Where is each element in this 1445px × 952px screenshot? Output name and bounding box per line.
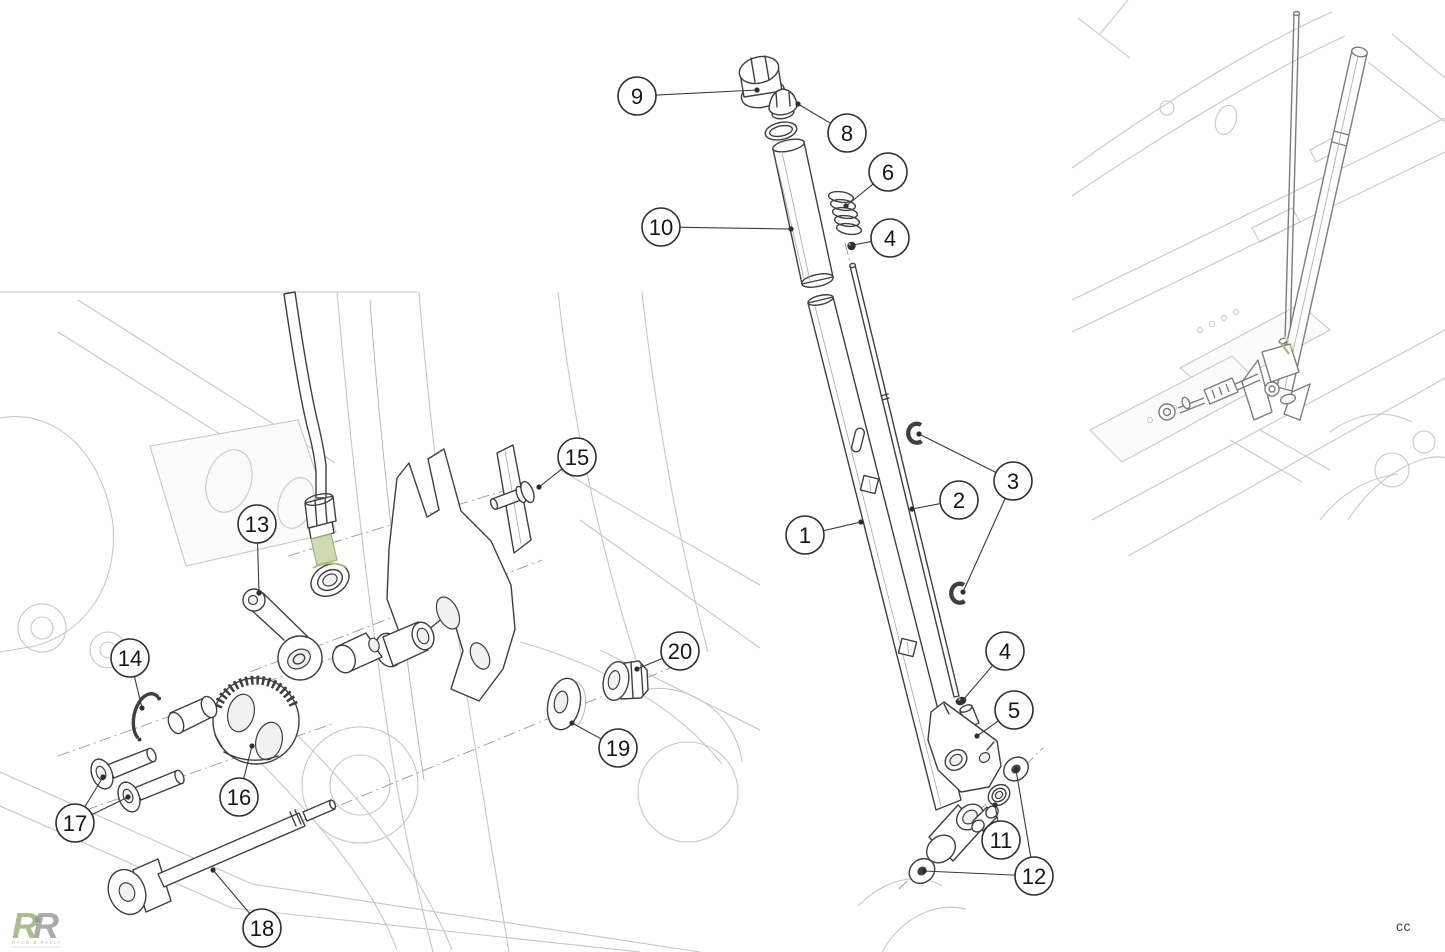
flanged-nut-part-20 <box>600 659 648 702</box>
leader-line <box>572 723 601 739</box>
leader-dot <box>125 794 130 799</box>
callout-number: 1 <box>799 523 811 548</box>
callout-number: 12 <box>1022 864 1046 889</box>
leader-dot <box>1013 767 1018 772</box>
callout-number: 16 <box>227 785 251 810</box>
callout-number: 9 <box>631 84 643 109</box>
chassis-background <box>1072 0 1445 556</box>
callout-number: 2 <box>953 488 965 513</box>
callout-number: 13 <box>245 512 269 537</box>
leader-dot <box>921 868 926 873</box>
callout-number: 18 <box>250 916 274 941</box>
leader-dot <box>850 242 855 247</box>
outer-tube-part-10 <box>772 137 835 290</box>
leader-dot <box>916 431 921 436</box>
washer-part-19 <box>543 675 586 733</box>
leader-line <box>213 870 250 913</box>
circlip-part-14 <box>133 694 161 742</box>
callout-15: 15 <box>536 438 596 490</box>
callout-number: 11 <box>990 828 1013 853</box>
callout-1: 1 <box>786 516 864 554</box>
brand-logo: R R & RACE & RALLY <box>12 905 62 947</box>
credit-text: cc <box>1396 918 1411 934</box>
pedal-assembly-exploded-view <box>0 292 760 952</box>
clevis-pin-short <box>165 694 219 736</box>
leader-line <box>963 665 993 700</box>
callout-8: 8 <box>795 101 866 152</box>
leader-dot <box>634 666 639 671</box>
callout-number: 5 <box>1008 698 1020 723</box>
leader-dot <box>569 720 574 725</box>
callout-20: 20 <box>634 632 699 672</box>
logo-ampersand: & <box>34 914 41 924</box>
leader-dot <box>909 506 914 511</box>
callout-10: 10 <box>642 208 794 246</box>
parts-diagram-page: 9861041532113142045191617111218 R R & RA… <box>0 0 1445 952</box>
callout-17: 17 <box>56 774 131 842</box>
leader-dot <box>754 87 759 92</box>
leader-line <box>924 871 1015 875</box>
leader-dot <box>139 705 144 710</box>
leader-dot <box>536 484 541 489</box>
pivot-tube <box>921 799 988 869</box>
callout-number: 3 <box>1007 469 1019 494</box>
leader-dot <box>974 733 979 738</box>
callout-number: 4 <box>884 226 896 251</box>
leader-dot <box>256 590 261 595</box>
diagram-canvas: 9861041532113142045191617111218 R R & RA… <box>0 0 1445 952</box>
leader-line <box>680 227 791 229</box>
assembled-overview-view <box>1072 0 1445 556</box>
leader-line <box>853 242 871 245</box>
leader-line <box>539 469 562 487</box>
fork-bracket-part <box>387 445 531 701</box>
pivot-boss-bushings <box>329 619 437 675</box>
callout-3: 3 <box>916 431 1032 594</box>
leader-line <box>912 504 940 509</box>
logo-subtext: RACE & RALLY <box>12 940 62 945</box>
pedal-axis-lines <box>58 486 692 889</box>
callout-2: 2 <box>909 481 978 519</box>
leader-dot <box>100 774 105 779</box>
callout-19: 19 <box>569 720 637 767</box>
leader-dot <box>960 589 965 594</box>
callout-4: 4 <box>850 219 909 257</box>
callout-number: 20 <box>668 639 692 664</box>
callout-number: 8 <box>841 121 853 146</box>
callout-9: 9 <box>618 77 760 115</box>
assembled-handbrake <box>1159 12 1368 421</box>
leader-dot <box>788 226 793 231</box>
leader-line <box>258 543 259 593</box>
callout-number: 10 <box>649 215 673 240</box>
callout-number: 6 <box>882 160 894 185</box>
lever-arm-part-13 <box>243 589 322 680</box>
callout-number: 14 <box>118 646 142 671</box>
callout-14: 14 <box>111 639 149 711</box>
callout-18: 18 <box>210 867 281 947</box>
leader-dot <box>249 743 254 748</box>
leader-dot <box>210 867 215 872</box>
callout-5: 5 <box>974 691 1033 739</box>
leader-dot <box>960 697 965 702</box>
leader-dot <box>843 203 848 208</box>
leader-line <box>798 104 831 123</box>
leader-dot <box>992 802 997 807</box>
floor-arcs-background <box>858 879 966 952</box>
callout-6: 6 <box>843 153 907 209</box>
callout-number: 17 <box>63 811 87 836</box>
leader-dot <box>858 519 863 524</box>
callout-number: 15 <box>565 445 589 470</box>
leader-dot <box>795 101 800 106</box>
knurled-gear-part-16 <box>213 678 299 764</box>
leader-line <box>824 522 861 531</box>
leader-line <box>919 434 996 473</box>
callout-number: 4 <box>999 639 1011 664</box>
callout-number: 19 <box>606 736 630 761</box>
